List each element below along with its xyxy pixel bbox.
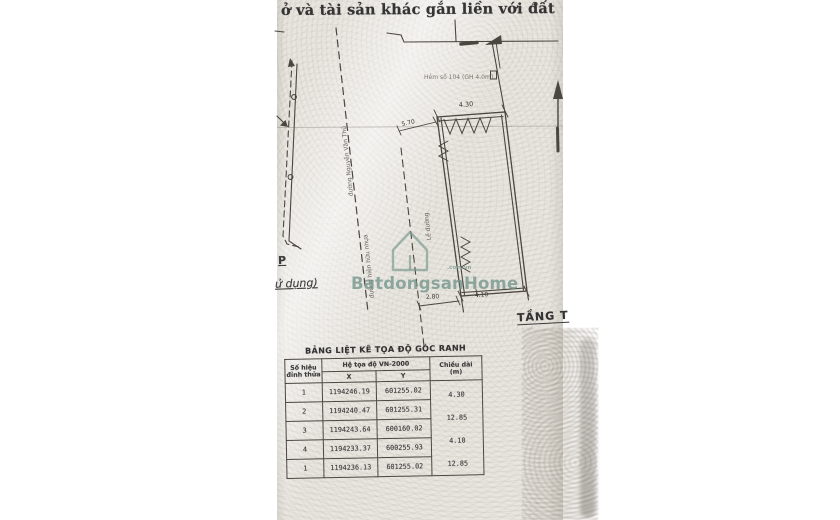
plot-inner-right [502,115,524,290]
cutoff-text-fragment: P [278,254,287,267]
dim-bottom-offset-label: 2.80 [426,293,440,301]
watermark-suffix: .com.vn [447,265,471,271]
alley-line [387,33,558,42]
alley-label: Hẻm số 104 (GH 4.0m) [424,74,493,81]
road-name-label: đường Nguyễn Văn Thủ [341,125,355,196]
header-point-id: Số hiệu đỉnh thửa [285,359,322,384]
north-arrow-base [558,128,559,151]
arrowhead-top-icon [288,58,295,67]
scanned-land-document: ở và tài sản khác gắn liền với đất [0,0,840,520]
north-arrow-icon [553,80,563,99]
dim-line-280 [419,301,459,306]
dim-top-label: 4.30 [459,100,474,109]
cutoff-text-fragment: ử dụng) [275,276,318,290]
length-column: 4.30 12.85 4.10 12.85 [430,380,484,476]
left-tick [275,31,284,32]
header-length: Chiều dài (m) [430,356,482,381]
coordinate-table: Số hiệu đỉnh thửa Hệ tọa độ VN-2000 Chiề… [284,355,484,479]
watermark-house-icon [390,228,430,272]
alley-tick [455,20,456,41]
watermark-text: BatdongsanHome [351,274,518,293]
plot-inner-top [438,117,503,122]
alley-bold-mark [461,43,477,45]
coordinate-table-block: BẢNG LIỆT KÊ TỌA ĐỘ GÓC RANH Số hiệu đỉn… [284,343,488,479]
dim-tick [456,296,460,305]
table-row: 1 1194246.19 601255.02 4.30 12.85 4.10 1… [285,380,482,403]
alley-side-line [492,42,505,113]
survey-linework [275,20,563,346]
floor-label: TẦNG T [517,309,569,326]
alley-wedge-mark [485,35,502,45]
left-boundary-dashed [283,61,299,247]
arrowhead-mid-icon [280,120,288,127]
